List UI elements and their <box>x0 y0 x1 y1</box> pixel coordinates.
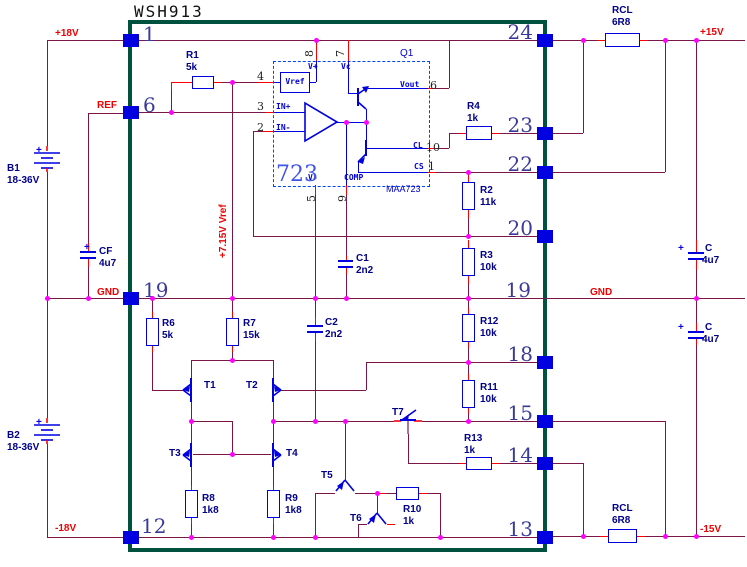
label-components-cf-ref: CF <box>99 246 112 257</box>
wire-segment <box>449 40 450 88</box>
label-components-cf-polarity: + <box>84 242 90 253</box>
junction-dot <box>663 38 668 43</box>
pin-pad <box>123 531 139 544</box>
junction-dot <box>169 110 174 115</box>
wire-segment <box>280 390 366 391</box>
wire-segment <box>355 493 377 494</box>
label-components-c_neg_rail-ref: C <box>705 322 712 333</box>
junction-dot <box>230 296 235 301</box>
wire-segment <box>348 40 349 61</box>
junction-dot <box>438 535 443 540</box>
wire-segment <box>232 82 233 298</box>
label-nets-gnd_right: GND <box>590 287 612 298</box>
schematic-canvas: VrefWSH913161912242322201918151413+18VRE… <box>0 0 747 567</box>
label-ic723-pins-cs: 1 <box>428 160 435 173</box>
wire-segment <box>436 88 449 89</box>
label-components-r3-value: 10k <box>480 262 497 273</box>
label-pins_right-8: 13 <box>505 517 533 541</box>
wire-segment <box>315 195 316 298</box>
wire-segment <box>232 82 258 83</box>
pin-pad <box>537 34 553 47</box>
label-components-r3-ref: R3 <box>480 250 493 261</box>
junction-dot <box>466 234 471 239</box>
label-ic723-ports-vplus: V+ <box>308 62 318 71</box>
resistor-body <box>192 76 214 89</box>
wire-segment <box>232 421 233 454</box>
label-components-r12-ref: R12 <box>480 316 498 327</box>
wire-segment <box>553 133 583 134</box>
junction-dot <box>230 452 235 457</box>
label-ic723-ports-in_n: IN- <box>276 123 290 132</box>
label-components-r2-ref: R2 <box>480 185 493 196</box>
junction-dot <box>343 419 348 424</box>
wire-segment <box>171 82 172 90</box>
label-components-r8-value: 1k8 <box>202 505 219 516</box>
junction-dot <box>45 296 50 301</box>
label-pins_left-0: 1 <box>143 22 156 46</box>
transistor-T5 <box>333 478 357 494</box>
label-ic723-ports-cl: CL <box>413 141 423 150</box>
junction-dot <box>694 296 699 301</box>
wire-segment <box>640 40 648 41</box>
label-components-c_neg_rail-value: 4u7 <box>702 334 719 345</box>
vref-block: Vref <box>280 72 310 93</box>
label-components-r11-ref: R11 <box>480 382 498 393</box>
label-pins_left-3: 12 <box>141 514 166 538</box>
resistor-body <box>466 126 492 140</box>
label-ic723-pins-cl: 10 <box>426 141 440 154</box>
wire-segment <box>377 493 378 513</box>
transistor-T4 <box>261 442 285 468</box>
wire-segment <box>358 172 428 173</box>
label-components-cf-value: 4u7 <box>99 258 116 269</box>
wire-segment <box>47 298 48 418</box>
junction-dot <box>344 120 349 125</box>
resistor-body <box>267 490 280 518</box>
wire-segment <box>637 536 645 537</box>
junction-dot <box>663 534 668 539</box>
transistor-T1 <box>179 377 203 403</box>
wire-segment <box>139 40 537 41</box>
label-components-r10-value: 1k <box>403 516 414 527</box>
resistor-body <box>396 487 419 500</box>
wire-segment <box>346 185 347 195</box>
wire-segment <box>366 362 367 390</box>
wire-segment <box>139 537 537 538</box>
label-components-r8-ref: R8 <box>202 493 215 504</box>
wire-segment <box>253 131 254 236</box>
wire-segment <box>47 172 48 298</box>
wire-segment <box>315 333 316 341</box>
label-nets-ref: REF <box>97 100 117 111</box>
wire-segment <box>553 40 597 41</box>
label-ic723-designator: Q1 <box>400 48 413 59</box>
wire-segment <box>88 267 89 298</box>
junction-dot <box>313 535 318 540</box>
label-components-c_neg_rail-polarity: + <box>678 322 684 333</box>
wire-segment <box>274 112 305 113</box>
pin-pad <box>537 166 553 179</box>
label-components-c_pos_rail-polarity: + <box>678 243 684 254</box>
wire-segment <box>345 421 346 480</box>
capacitor-plate <box>338 266 353 268</box>
label-components-t1-ref: T1 <box>204 380 216 391</box>
junction-dot <box>466 419 471 424</box>
label-components-c2-ref: C2 <box>325 317 338 328</box>
wire-segment <box>47 537 123 538</box>
wire-segment <box>492 463 500 464</box>
label-ic723-pins-in_p: 3 <box>257 100 264 113</box>
wire-segment <box>47 40 123 41</box>
junction-dot <box>230 358 235 363</box>
label-pins_right-3: 20 <box>505 216 533 240</box>
label-nets-p18v: +18V <box>55 28 79 39</box>
label-pins_right-0: 24 <box>505 20 533 44</box>
label-components-rcl_top-value: 6R8 <box>612 17 630 28</box>
junction-dot <box>313 296 318 301</box>
wire-segment <box>449 133 460 134</box>
label-components-b2-ref: B2 <box>7 430 20 441</box>
wire-segment <box>468 210 469 218</box>
label-nets-p15v: +15V <box>700 27 724 38</box>
junction-dot <box>694 534 699 539</box>
wire-segment <box>366 362 468 363</box>
junction-dot <box>314 38 319 43</box>
label-ic723-pins-vref: 4 <box>257 70 264 83</box>
junction-dot <box>581 38 586 43</box>
resistor-body <box>226 318 239 346</box>
wire-segment <box>253 236 468 237</box>
label-components-t3-ref: T3 <box>169 448 181 459</box>
wire-segment <box>553 536 600 537</box>
label-components-r13-ref: R13 <box>464 433 482 444</box>
wire-segment <box>600 536 608 537</box>
wire-segment <box>553 421 665 422</box>
pin-pad <box>537 531 553 544</box>
label-components-t6-ref: T6 <box>350 513 362 524</box>
label-components-r10-ref: R10 <box>403 504 421 515</box>
wire-segment <box>440 493 441 537</box>
label-components-c1-value: 2n2 <box>356 265 373 276</box>
junction-dot <box>694 38 699 43</box>
wire-segment <box>583 40 584 133</box>
label-components-r6-ref: R6 <box>162 318 175 329</box>
wire-segment <box>419 493 427 494</box>
junction-dot <box>189 535 194 540</box>
pin-pad <box>537 356 553 369</box>
label-components-c1-ref: C1 <box>356 253 369 264</box>
wire-segment <box>316 40 317 61</box>
transistor-T2 <box>261 377 285 403</box>
label-ic723-core: 723 <box>276 162 318 187</box>
wire-segment <box>553 463 583 464</box>
transistor-limit-723 <box>354 138 374 164</box>
label-nets-gnd_left: GND <box>97 287 119 298</box>
wire-segment <box>273 421 394 422</box>
junction-dot <box>364 120 369 125</box>
wire-segment <box>88 113 123 114</box>
label-ic723-ports-comp: COMP <box>344 173 363 182</box>
capacitor-plate <box>80 257 96 259</box>
label-pins_right-4: 19 <box>503 278 531 302</box>
resistor-body <box>146 318 159 346</box>
wire-segment <box>191 360 192 378</box>
label-ic723-ports-in_p: IN+ <box>276 102 290 111</box>
junction-dot <box>271 535 276 540</box>
opamp-triangle <box>303 100 339 144</box>
wire-segment <box>88 113 89 243</box>
label-components-c2-value: 2n2 <box>325 329 342 340</box>
wire-segment <box>315 341 316 421</box>
junction-dot <box>189 419 194 424</box>
wire-segment <box>696 345 697 536</box>
pin-pad <box>123 34 139 47</box>
wire-segment <box>449 133 450 148</box>
wire-segment <box>273 400 274 421</box>
resistor-body <box>185 490 198 518</box>
pin-pad <box>123 292 139 305</box>
label-components-t5-ref: T5 <box>321 470 333 481</box>
label-components-b1-value: 18-36V <box>7 175 39 186</box>
label-components-t7-ref: T7 <box>392 407 404 418</box>
resistor-body <box>462 380 475 408</box>
label-pins_left-2: 19 <box>143 278 168 302</box>
wire-segment <box>337 122 366 123</box>
label-components-r1-ref: R1 <box>186 50 199 61</box>
label-ic723-pins-vout: 6 <box>430 79 437 92</box>
wire-segment <box>665 40 666 172</box>
wire-segment <box>265 112 274 113</box>
label-components-r11-value: 10k <box>480 394 497 405</box>
label-components-r12-value: 10k <box>480 328 497 339</box>
label-components-r6-value: 5k <box>162 330 173 341</box>
label-ic723-pins-vc: 7 <box>334 50 347 57</box>
resistor-body <box>605 33 640 47</box>
junction-dot <box>466 296 471 301</box>
wire-segment <box>696 240 697 252</box>
wire-segment <box>553 172 665 173</box>
label-ic723-ports-vc: Vc <box>341 62 351 71</box>
label-pins_right-7: 14 <box>505 443 533 467</box>
label-components-rcl_bot-value: 6R8 <box>612 515 630 526</box>
label-components-r2-value: 11k <box>480 197 496 208</box>
junction-dot <box>313 419 318 424</box>
capacitor-plate <box>688 331 704 333</box>
wire-segment <box>171 82 192 83</box>
wire-segment <box>315 493 316 537</box>
wire-segment <box>696 323 697 331</box>
label-pins_right-1: 23 <box>505 113 533 137</box>
label-title: WSH913 <box>134 2 204 21</box>
resistor-body <box>462 182 475 210</box>
wire-segment <box>597 40 605 41</box>
label-components-r7-ref: R7 <box>243 318 256 329</box>
label-nets-vref_rail: +7.15V Vref <box>218 204 229 258</box>
capacitor-plate <box>307 325 323 327</box>
wire-segment <box>171 90 172 112</box>
pin-pad <box>537 415 553 428</box>
label-components-r7-value: 15k <box>243 330 260 341</box>
junction-dot <box>344 296 349 301</box>
label-components-b1-polarity: + <box>36 145 42 156</box>
wire-segment <box>315 493 335 494</box>
wire-segment <box>696 298 697 323</box>
label-nets-m18v: -18V <box>55 523 76 534</box>
wire-segment <box>47 444 48 537</box>
wire-segment <box>346 195 347 256</box>
junction-dot <box>150 296 155 301</box>
transistor-pass-723 <box>354 82 374 112</box>
wire-segment <box>263 131 274 132</box>
junction-dot <box>466 170 471 175</box>
pin-pad <box>537 457 553 470</box>
wire-segment <box>47 40 48 146</box>
label-ic723-ports-vout: Vout <box>400 80 419 89</box>
wire-segment <box>386 493 396 494</box>
wire-segment <box>191 465 192 486</box>
junction-dot <box>230 80 235 85</box>
resistor-body <box>462 248 475 276</box>
wire-segment <box>468 240 469 248</box>
wire-segment <box>583 463 584 536</box>
label-components-c_pos_rail-value: 4u7 <box>702 255 719 266</box>
label-pins_right-6: 15 <box>505 401 533 425</box>
resistor-body <box>466 457 492 470</box>
pin-pad <box>537 127 553 140</box>
label-components-b1-ref: B1 <box>7 163 20 174</box>
wire-segment <box>696 40 697 240</box>
label-components-r13-value: 1k <box>464 445 475 456</box>
wire-segment <box>408 434 409 463</box>
label-ic723-pins-vminus: 5 <box>305 195 318 202</box>
wire-segment <box>191 421 232 422</box>
pin-pad <box>537 230 553 243</box>
label-ic723-pins-in_n: 2 <box>257 121 264 134</box>
resistor-body <box>608 529 637 543</box>
label-components-rcl_top-ref: RCL <box>612 5 633 16</box>
label-components-t2-ref: T2 <box>246 380 258 391</box>
wire-segment <box>408 463 460 464</box>
junction-dot <box>466 360 471 365</box>
label-components-r9-ref: R9 <box>285 493 298 504</box>
label-components-c_pos_rail-ref: C <box>705 243 712 254</box>
label-ic723-ports-cs: CS <box>414 162 424 171</box>
wire-segment <box>427 493 440 494</box>
wire-segment <box>492 133 500 134</box>
label-pins_right-2: 22 <box>505 152 533 176</box>
transistor-T3 <box>179 442 203 468</box>
label-components-r4-value: 1k <box>467 113 478 124</box>
label-components-r4-ref: R4 <box>467 101 480 112</box>
label-components-b2-value: 18-36V <box>7 442 39 453</box>
pin-pad <box>123 106 139 119</box>
transistor-T6 <box>365 511 389 527</box>
capacitor-plate <box>688 252 704 254</box>
label-components-rcl_bot-ref: RCL <box>612 503 633 514</box>
junction-dot <box>581 534 586 539</box>
label-nets-m15v: -15V <box>700 524 721 535</box>
junction-dot <box>86 296 91 301</box>
label-ic723-pins-vplus: 8 <box>303 50 316 57</box>
junction-dot <box>271 419 276 424</box>
capacitor-plate <box>307 331 323 333</box>
wire-segment <box>88 259 89 267</box>
label-components-r9-value: 1k8 <box>285 505 302 516</box>
wire-segment <box>468 276 469 284</box>
wire-segment <box>273 465 274 486</box>
junction-dot <box>375 491 380 496</box>
label-pins_left-1: 6 <box>143 93 156 117</box>
wire-segment <box>696 270 697 298</box>
label-components-t4-ref: T4 <box>286 448 298 459</box>
wire-segment <box>139 112 265 113</box>
wire-segment <box>152 352 153 390</box>
wire-segment <box>315 317 316 325</box>
resistor-body <box>462 314 475 342</box>
label-ic723-part: MAA723 <box>386 184 421 194</box>
wire-segment <box>214 82 222 83</box>
label-components-r1-value: 5k <box>186 62 197 73</box>
wire-segment <box>346 274 347 298</box>
wire-segment <box>273 360 274 378</box>
wire-segment <box>358 524 359 537</box>
label-components-b2-polarity: + <box>36 417 42 428</box>
wire-segment <box>665 421 666 536</box>
capacitor-plate <box>338 260 353 262</box>
label-ic723-pins-comp: 9 <box>336 195 349 202</box>
label-pins_right-5: 18 <box>505 342 533 366</box>
